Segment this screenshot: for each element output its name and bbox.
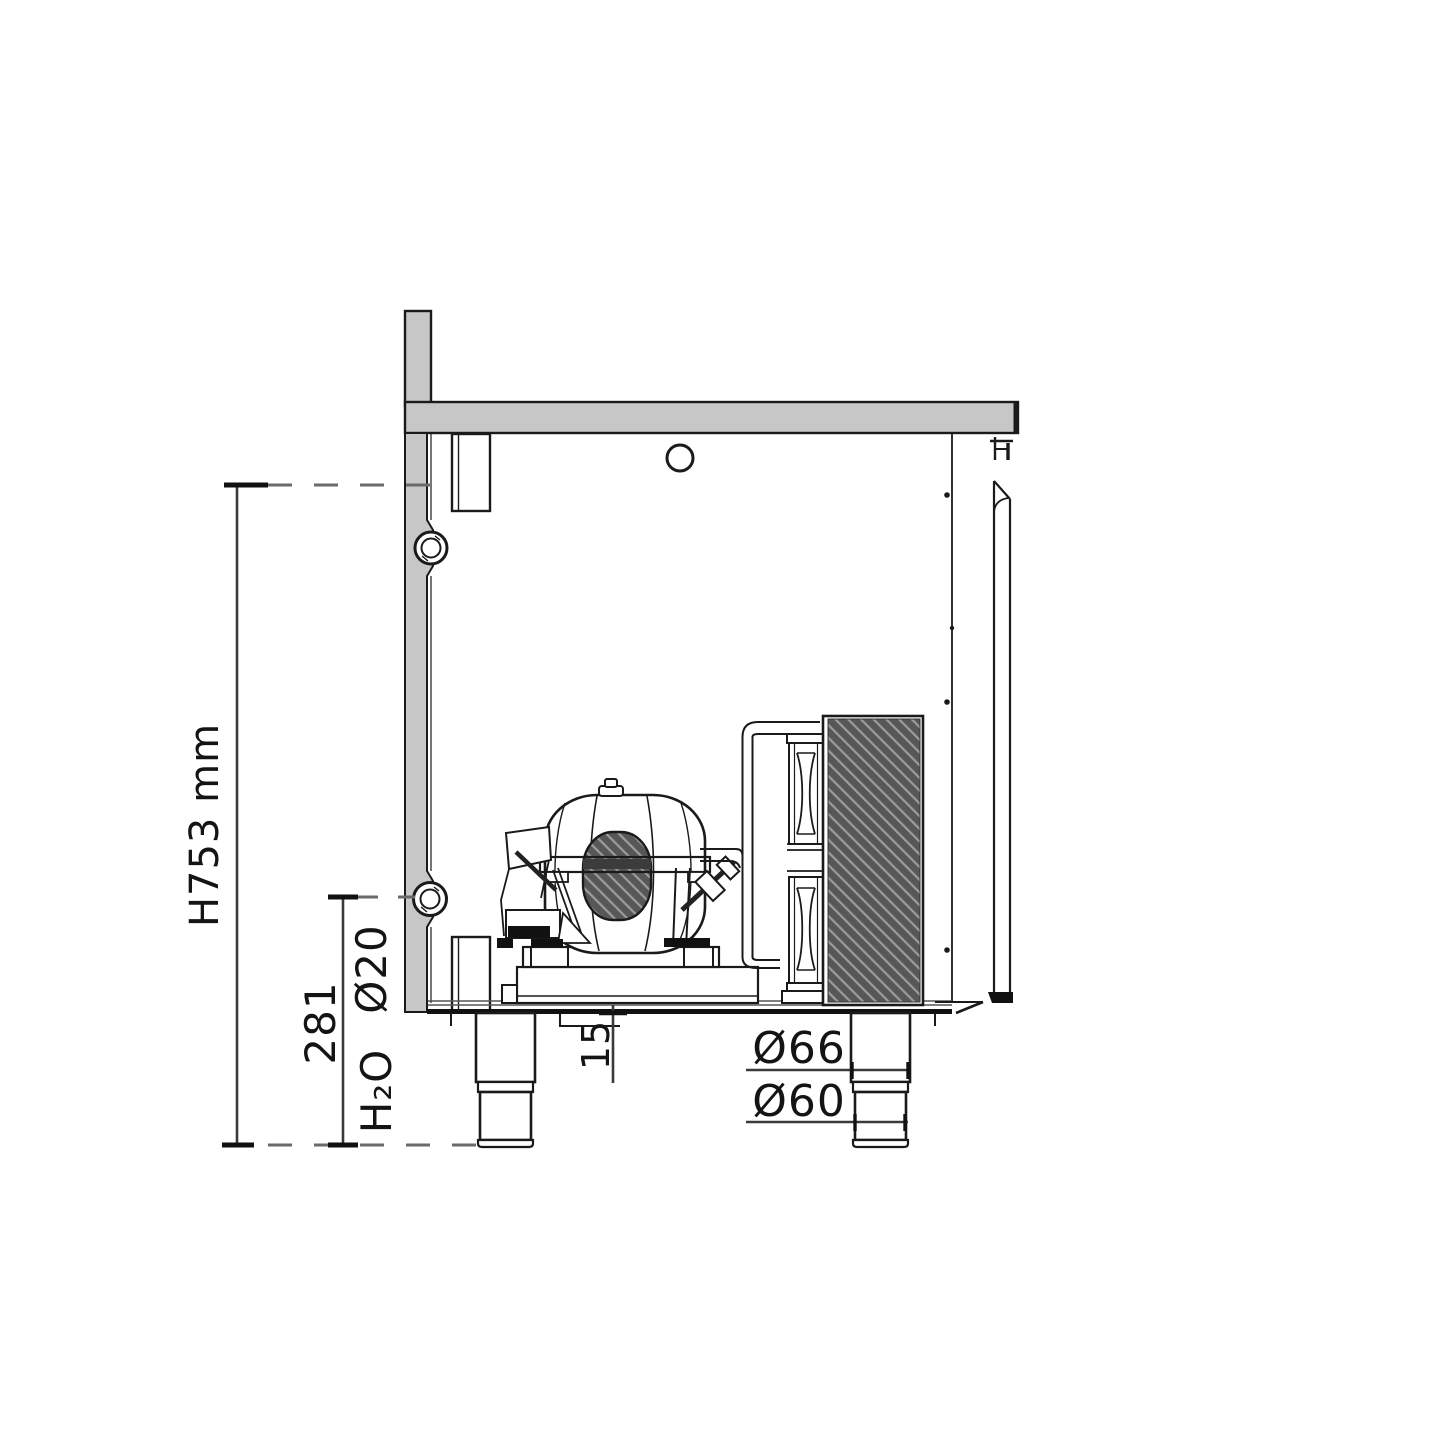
- left-leg: [476, 1013, 535, 1147]
- condenser-coil: [823, 716, 923, 1005]
- countertop: [405, 402, 1018, 433]
- left-wall-panel: [405, 433, 433, 1012]
- drain-box-upper: [452, 434, 490, 511]
- drain-height-label: 281: [300, 981, 342, 1064]
- door-hinge: [990, 437, 1013, 460]
- pipe-feedthrough-upper: [415, 532, 447, 564]
- drain-medium-label: H₂O: [356, 1049, 398, 1133]
- base-offset-label: 15: [577, 1020, 615, 1070]
- leg-foot-diameter-label: Ø60: [752, 1080, 846, 1124]
- technical-drawing-canvas: H753 mm 281 Ø20 H₂O 15 Ø66 Ø60: [0, 0, 1445, 1445]
- drain-diameter-label: Ø20: [351, 924, 393, 1014]
- worktop-hole: [667, 445, 693, 471]
- overall-height-label: H753 mm: [185, 723, 225, 927]
- leg-upper-diameter-label: Ø66: [752, 1027, 846, 1071]
- backsplash-panel: [405, 311, 431, 406]
- water-drain-feedthrough: [414, 883, 447, 916]
- door-gasket: [988, 992, 1013, 1003]
- right-leg: [851, 1013, 910, 1147]
- inner-rear-wall: [944, 433, 954, 1002]
- door-panel: [994, 481, 1010, 992]
